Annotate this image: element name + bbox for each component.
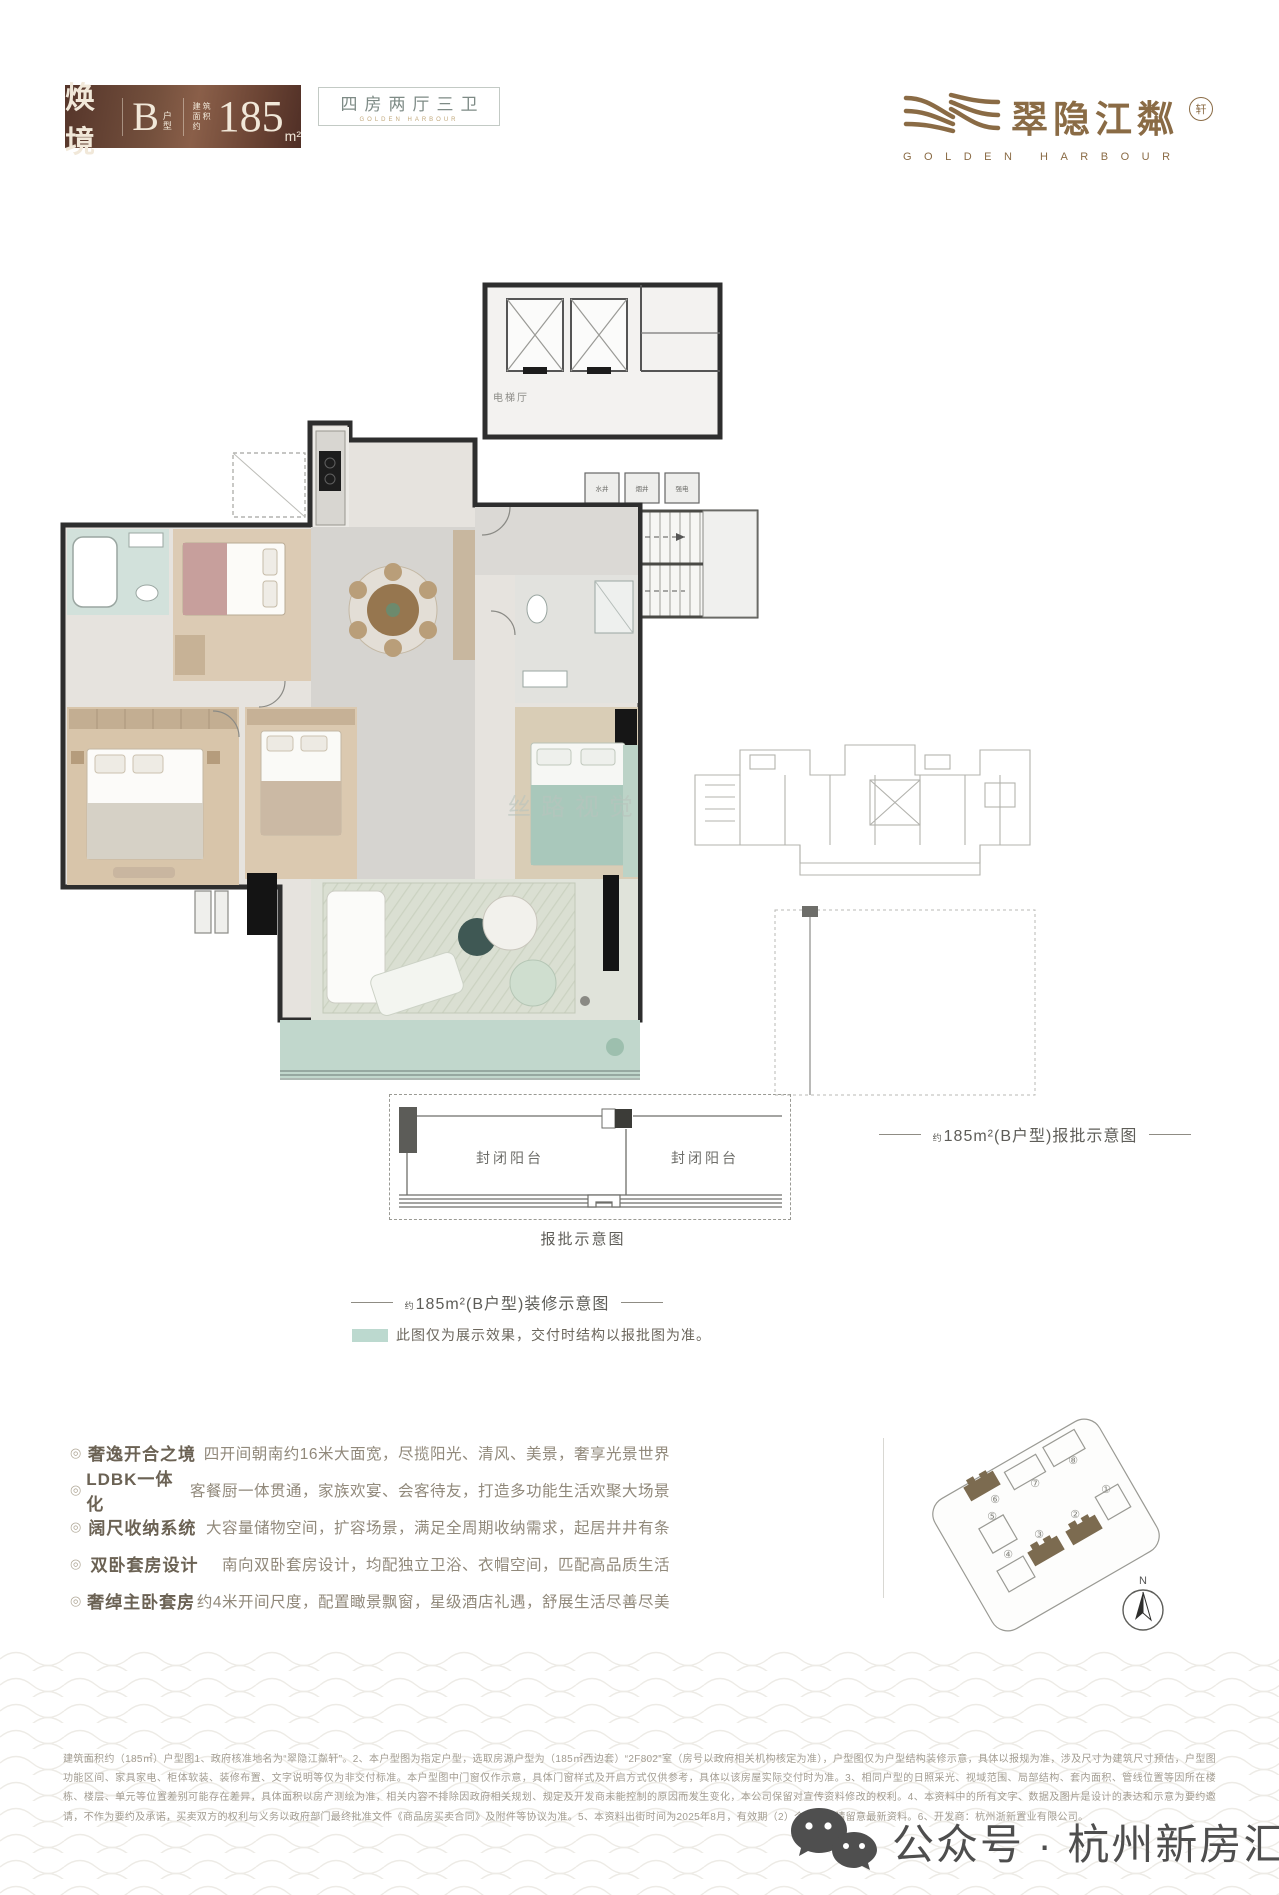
- feature-row: ◎ 奢绰主卧套房 约4米开间尺度，配置瞰景飘窗，星级酒店礼遇，舒展生活尽善尽美: [70, 1582, 670, 1619]
- unit-type-label: 户型: [161, 111, 174, 131]
- side-table: [483, 896, 537, 950]
- site-num-6: ⑥: [990, 1494, 1000, 1506]
- watermark-text: 丝路视觉: [507, 794, 643, 821]
- caption-dash: [351, 1302, 393, 1303]
- area-prefix-2: 面积约: [193, 112, 215, 132]
- caption-prefix: 约: [933, 1133, 943, 1143]
- bedroom-4: [515, 707, 638, 879]
- bedroom-2: [173, 529, 311, 681]
- badge-divider: [122, 98, 123, 136]
- elevator-hall-label: 电梯厅: [493, 391, 529, 404]
- feature-row: ◎ 双卧套房设计 南向双卧套房设计，均配独立卫浴、衣帽空间，匹配高品质生活: [70, 1545, 670, 1582]
- toilet: [136, 585, 158, 601]
- section-divider: [883, 1438, 884, 1598]
- bathtub: [73, 537, 117, 607]
- living-room: [311, 879, 638, 1020]
- kitchen: [313, 427, 349, 529]
- legend-text: 此图仅为展示效果，交付时结构以报批图为准。: [396, 1325, 711, 1345]
- key-plan-extent: [775, 906, 1035, 1095]
- site-num-3: ③: [1034, 1529, 1044, 1541]
- exterior-stubs: [195, 891, 228, 933]
- brand-seal: 轩: [1189, 97, 1213, 121]
- badge-divider: [183, 98, 184, 136]
- vanity: [129, 533, 163, 547]
- area-value: 185: [218, 99, 284, 134]
- compass-north-label: N: [1139, 1575, 1147, 1587]
- caption-dash: [879, 1134, 921, 1135]
- pouf: [510, 960, 556, 1006]
- caption-prefix: 约: [405, 1301, 415, 1311]
- bullet-icon: ◎: [70, 1519, 88, 1535]
- caption-dash: [1149, 1134, 1191, 1135]
- site-num-5: ⑤: [987, 1511, 997, 1523]
- site-num-2: ②: [1070, 1509, 1080, 1521]
- feature-row: ◎ LDBK一体化 客餐厨一体贯通，家族欢宴、会客待友，打造多功能生活欢聚大场景: [70, 1471, 670, 1508]
- balcony-label-left: 封闭阳台: [476, 1150, 544, 1166]
- unit-series-label: 焕境: [65, 73, 113, 161]
- wechat-account-text: 公众号 · 杭州新房汇: [892, 1811, 1279, 1872]
- bathroom-tub: [67, 529, 169, 615]
- wechat-footer: 公众号 · 杭州新房汇: [788, 1806, 1279, 1877]
- brand-name-en: GOLDEN HARBOUR: [903, 151, 1238, 163]
- site-plan: ⑥ ⑦ ⑧ ⑤ ③ ② ① ④ N: [895, 1408, 1279, 1668]
- bathroom-2: [515, 575, 638, 703]
- room-count-sublabel: GOLDEN HARBOUR: [359, 117, 458, 123]
- plan-legend: 此图仅为展示效果，交付时结构以报批图为准。: [352, 1325, 711, 1345]
- elevator-core: 电梯厅: [485, 285, 720, 437]
- feature-desc: 四开间朝南约16米大面宽，尽揽阳光、清风、美景，奢享光景世界: [204, 1442, 670, 1464]
- room-count-label: 四房两厅三卫: [334, 90, 485, 115]
- toilet: [527, 595, 547, 623]
- balcony-label-right: 封闭阳台: [671, 1150, 739, 1166]
- site-num-4: ④: [1003, 1549, 1013, 1561]
- shaft-label-power: 强电: [676, 484, 690, 493]
- logo-wave-icon: [903, 84, 1001, 147]
- feature-label: 奢绰主卧套房: [87, 1588, 197, 1613]
- balcony-approval-inset: 封闭阳台 封闭阳台: [389, 1094, 791, 1220]
- unit-badge: 焕境 B 户型 建筑 面积约 185 m²: [65, 85, 301, 148]
- bullet-icon: ◎: [70, 1445, 88, 1461]
- bullet-icon: ◎: [70, 1593, 87, 1609]
- wall-block: [603, 875, 619, 971]
- vanity: [523, 671, 567, 687]
- feature-label: 双卧套房设计: [91, 1551, 222, 1576]
- shaft-label-smoke: 烟井: [636, 484, 650, 493]
- hall-cabinet: [453, 530, 475, 660]
- wechat-icon: [788, 1806, 880, 1877]
- cooktop: [319, 451, 341, 491]
- pier: [399, 1107, 417, 1153]
- feature-row: ◎ 阔尺收纳系统 大容量储物空间，扩容场景，满足全周期收纳需求，起居井井有条: [70, 1508, 670, 1545]
- site-num-8: ⑧: [1068, 1455, 1078, 1467]
- poster-page: 焕境 B 户型 建筑 面积约 185 m² 四房两厅三卫 GOLDEN HARB…: [0, 0, 1279, 1895]
- brand-name-cn: 翠隐江粼: [1011, 89, 1179, 143]
- caption-dash: [621, 1302, 663, 1303]
- key-plan-caption: 约185m²(B户型)报批示意图: [870, 1122, 1200, 1146]
- legend-swatch: [352, 1329, 388, 1342]
- feature-label: 奢逸开合之境: [88, 1440, 204, 1465]
- key-plan: [680, 695, 1240, 1105]
- equipment-platform: [233, 453, 305, 517]
- decor-caption: 约185m²(B户型)装修示意图: [347, 1290, 667, 1314]
- bullet-icon: ◎: [70, 1556, 91, 1572]
- approval-inset-caption: 报批示意图: [483, 1228, 683, 1249]
- bedroom-3: [245, 707, 357, 879]
- shaft-label-water: 水井: [596, 484, 610, 493]
- wardrobe: [175, 635, 205, 675]
- area-prefix-1: 建筑: [193, 102, 215, 112]
- bullet-icon: ◎: [70, 1482, 86, 1498]
- room-count-box: 四房两厅三卫 GOLDEN HARBOUR: [318, 87, 500, 126]
- wall-block: [247, 873, 277, 935]
- feature-label: LDBK一体化: [86, 1465, 190, 1515]
- site-num-7: ⑦: [1030, 1478, 1040, 1490]
- site-num-1: ①: [1101, 1484, 1111, 1496]
- key-plan-caption-text: 185m²(B户型)报批示意图: [944, 1128, 1138, 1145]
- decor-caption-text: 185m²(B户型)装修示意图: [416, 1296, 610, 1313]
- feature-desc: 南向双卧套房设计，均配独立卫浴、衣帽空间，匹配高品质生活: [222, 1553, 670, 1575]
- pier: [615, 1109, 632, 1128]
- compass-north-icon: N: [1123, 1575, 1163, 1630]
- feature-list: ◎ 奢逸开合之境 四开间朝南约16米大面宽，尽揽阳光、清风、美景，奢享光景世界 …: [70, 1434, 670, 1619]
- feature-desc: 约4米开间尺度，配置瞰景飘窗，星级酒店礼遇，舒展生活尽善尽美: [197, 1590, 670, 1612]
- brand-logo: 翠隐江粼 轩 GOLDEN HARBOUR: [903, 84, 1238, 163]
- feature-label: 阔尺收纳系统: [88, 1514, 206, 1539]
- bench: [113, 867, 175, 878]
- floor-plan: 电梯厅 水井 烟井 强电: [55, 275, 775, 1090]
- utility-shafts: 水井 烟井 强电: [585, 473, 699, 503]
- feature-desc: 客餐厨一体贯通，家族欢宴、会客待友，打造多功能生活欢聚大场景: [190, 1479, 670, 1501]
- feature-desc: 大容量储物空间，扩容场景，满足全周期收纳需求，起居井井有条: [206, 1516, 670, 1538]
- master-bedroom: [67, 707, 239, 885]
- area-unit: m²: [285, 128, 301, 148]
- unit-type-letter: B: [132, 100, 159, 134]
